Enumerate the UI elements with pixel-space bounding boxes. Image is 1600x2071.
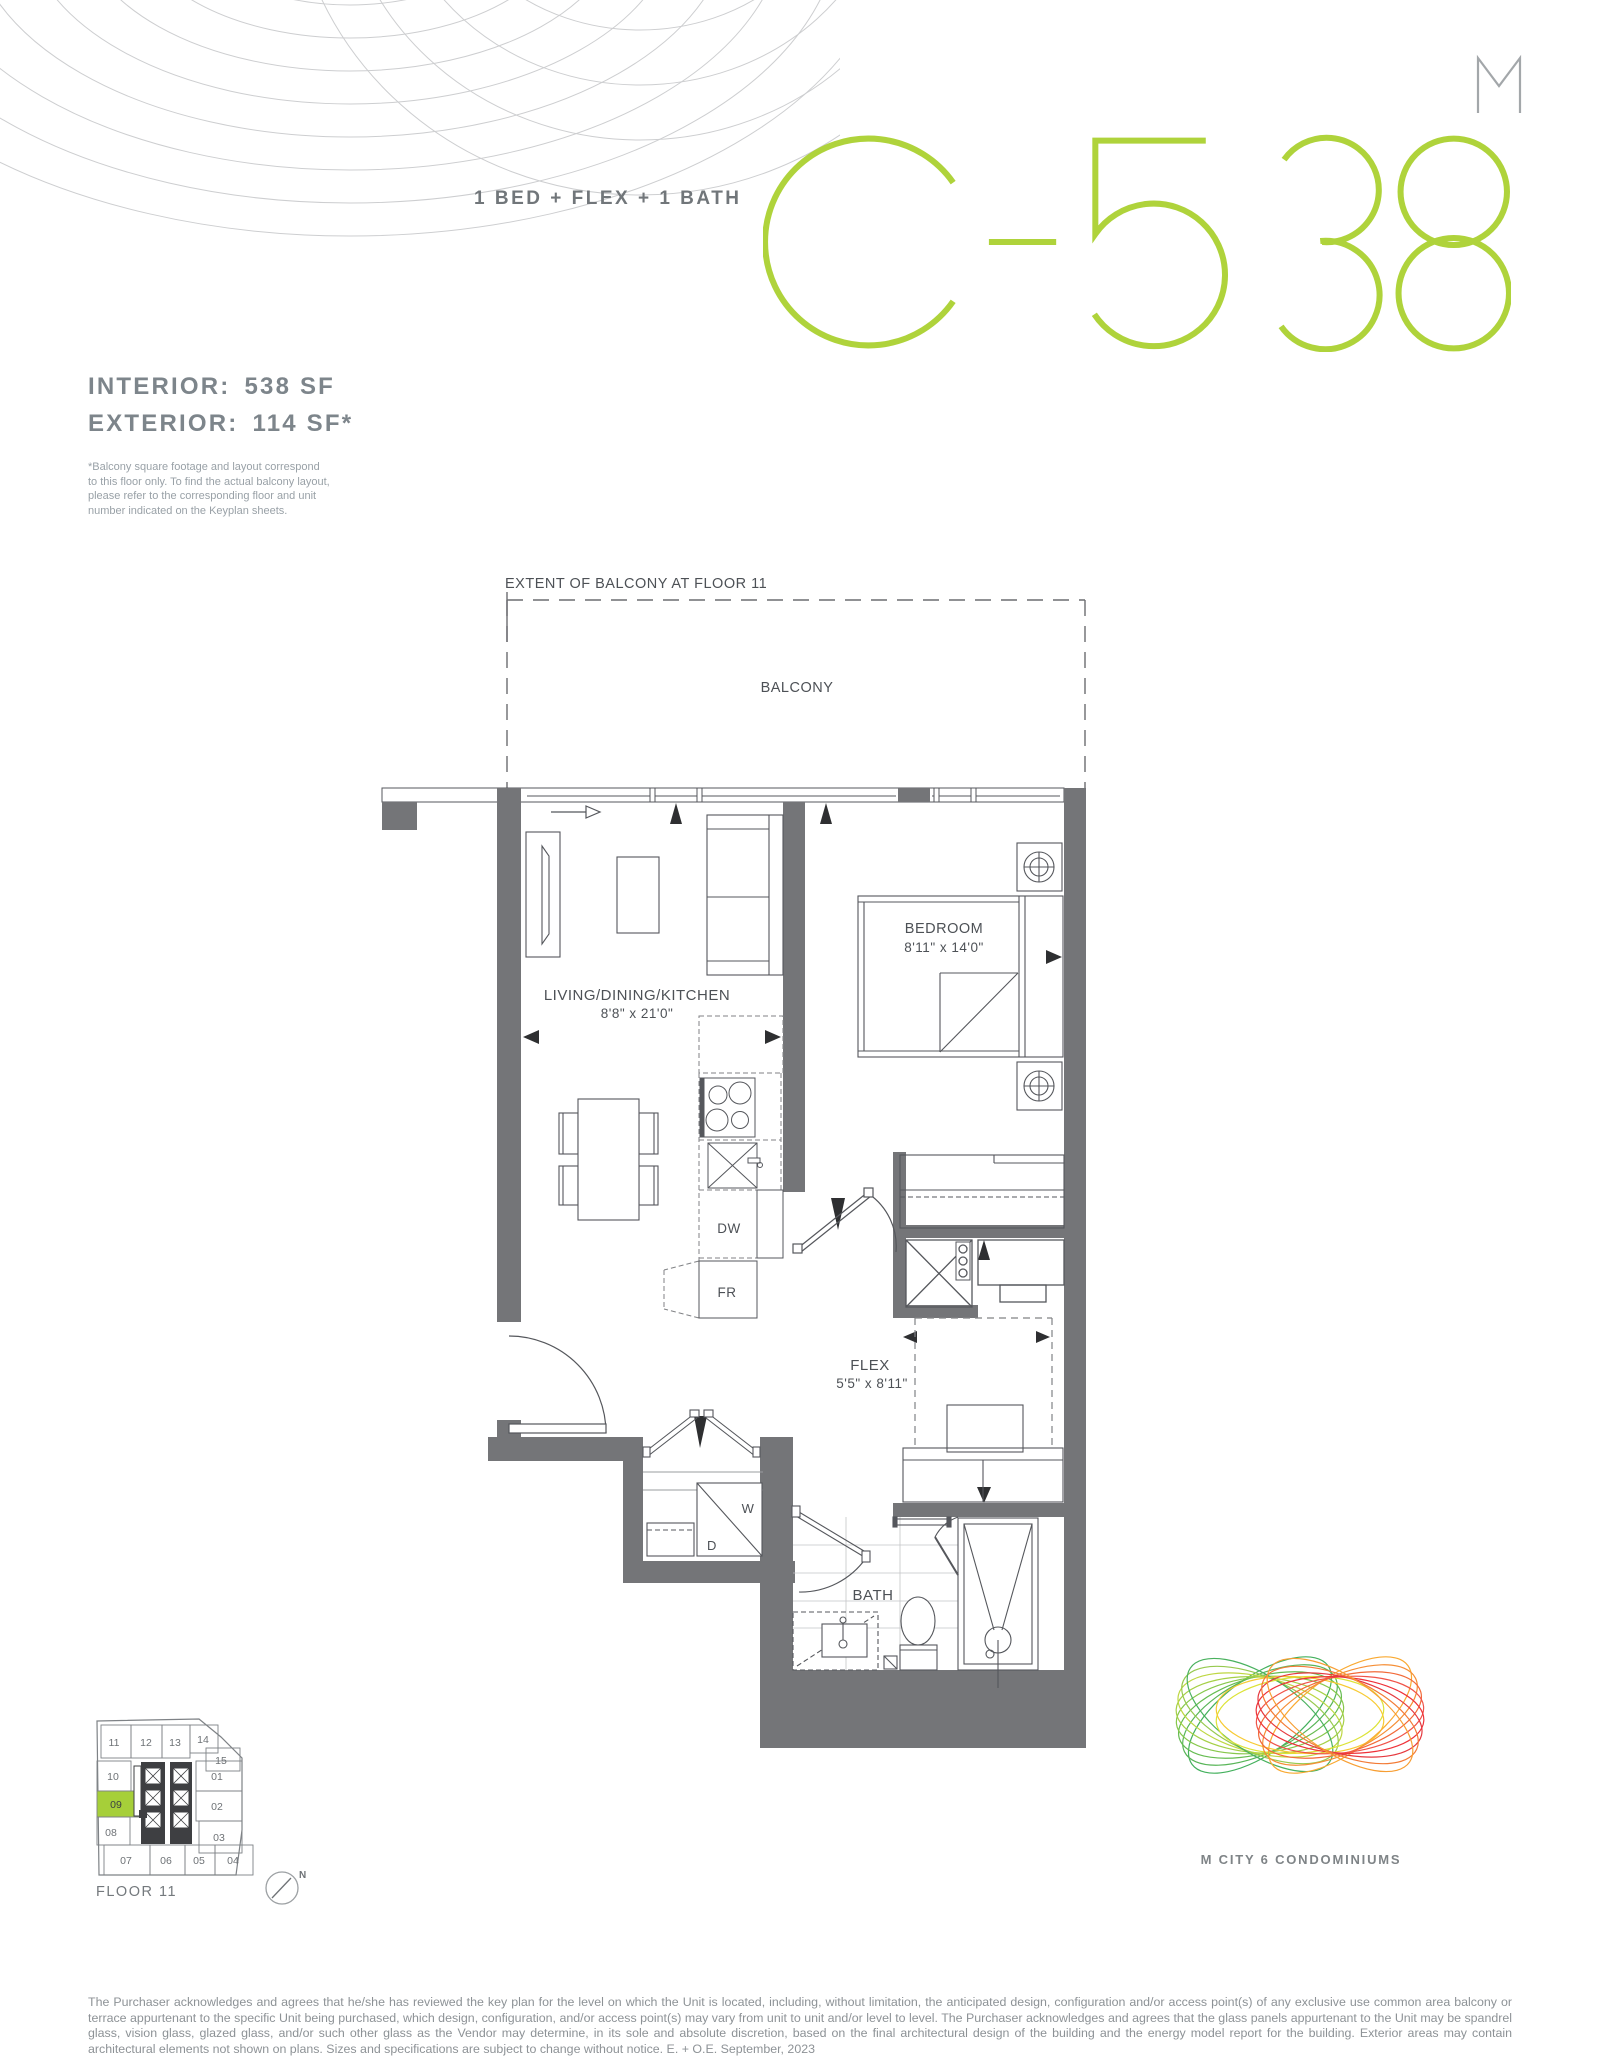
keyplan-unit-03: 03 bbox=[213, 1832, 225, 1844]
bathroom bbox=[792, 1506, 1038, 1688]
flex-dims: 5'5" x 8'11" bbox=[836, 1376, 908, 1391]
keyplan-unit-15: 15 bbox=[215, 1755, 227, 1767]
entry-direction-arrow bbox=[551, 806, 600, 818]
fridge-label: FR bbox=[718, 1285, 737, 1300]
living-room-label: LIVING/DINING/KITCHEN bbox=[544, 987, 730, 1004]
flex-label: FLEX bbox=[850, 1357, 890, 1374]
keyplan-cores bbox=[134, 1762, 192, 1844]
floorplan-page: EXTENT OF BALCONY AT FLOOR 11 BALCONY bbox=[0, 0, 1600, 2071]
window-band bbox=[382, 788, 1064, 802]
keyplan-unit-14: 14 bbox=[197, 1734, 209, 1746]
extent-of-balcony-label: EXTENT OF BALCONY AT FLOOR 11 bbox=[505, 576, 767, 592]
keyplan-floor-label: FLOOR 11 bbox=[96, 1884, 177, 1900]
exterior-value: 114 SF* bbox=[252, 410, 353, 437]
keyplan-unit-11: 11 bbox=[109, 1737, 120, 1749]
bedroom-label: BEDROOM bbox=[905, 921, 983, 937]
north-compass-icon bbox=[266, 1872, 298, 1904]
keyplan-unit-04: 04 bbox=[227, 1855, 239, 1867]
keyplan-unit-02: 02 bbox=[211, 1801, 223, 1813]
keyplan-unit-10: 10 bbox=[107, 1771, 119, 1783]
flex-room bbox=[903, 1318, 1063, 1502]
kitchen bbox=[664, 1016, 783, 1318]
bedroom-furniture bbox=[858, 843, 1064, 1228]
washer-label: W bbox=[742, 1501, 755, 1516]
unit-code-lettering bbox=[763, 134, 1511, 352]
interior-label: INTERIOR: bbox=[88, 373, 230, 400]
balcony-footnote: *Balcony square footage and layout corre… bbox=[88, 460, 330, 518]
dining-set bbox=[559, 1099, 658, 1220]
interior-area-row: INTERIOR:538 SF bbox=[88, 368, 353, 405]
keyplan-unit-09: 09 bbox=[110, 1799, 122, 1811]
north-label: N bbox=[299, 1870, 306, 1881]
interior-value: 538 SF bbox=[244, 373, 335, 400]
keyplan-unit-05: 05 bbox=[193, 1855, 205, 1867]
keyplan: 11 12 13 14 15 10 01 09 02 08 03 07 06 0… bbox=[97, 1719, 306, 1904]
legal-disclaimer: The Purchaser acknowledges and agrees th… bbox=[88, 1995, 1512, 2057]
dryer-label: D bbox=[707, 1538, 717, 1553]
keyplan-unit-08: 08 bbox=[105, 1827, 117, 1839]
keyplan-unit-12: 12 bbox=[140, 1737, 152, 1749]
keyplan-unit-01: 01 bbox=[211, 1771, 223, 1783]
keyplan-unit-07: 07 bbox=[120, 1855, 132, 1867]
floor-plan: EXTENT OF BALCONY AT FLOOR 11 BALCONY bbox=[382, 576, 1086, 1748]
exterior-label: EXTERIOR: bbox=[88, 410, 238, 437]
hall-door bbox=[793, 1188, 896, 1253]
exterior-area-row: EXTERIOR:114 SF* bbox=[88, 405, 353, 442]
keyplan-unit-13: 13 bbox=[169, 1737, 181, 1749]
living-room-furniture bbox=[526, 815, 783, 975]
dishwasher-label: DW bbox=[717, 1221, 741, 1236]
area-summary: INTERIOR:538 SF EXTERIOR:114 SF* bbox=[88, 368, 353, 442]
bedroom-dims: 8'11" x 14'0" bbox=[904, 940, 984, 955]
balcony-label: BALCONY bbox=[761, 680, 834, 696]
mcity-knot-logo bbox=[1168, 1635, 1432, 1795]
bath-label: BATH bbox=[853, 1587, 894, 1604]
brand-name: M CITY 6 CONDOMINIUMS bbox=[1183, 1852, 1419, 1867]
living-room-dims: 8'8" x 21'0" bbox=[601, 1006, 674, 1021]
entry-door bbox=[509, 1336, 606, 1433]
m-logo-icon bbox=[1478, 58, 1520, 113]
plan-type-heading: 1 BED + FLEX + 1 BATH bbox=[474, 188, 742, 210]
keyplan-unit-06: 06 bbox=[160, 1855, 172, 1867]
